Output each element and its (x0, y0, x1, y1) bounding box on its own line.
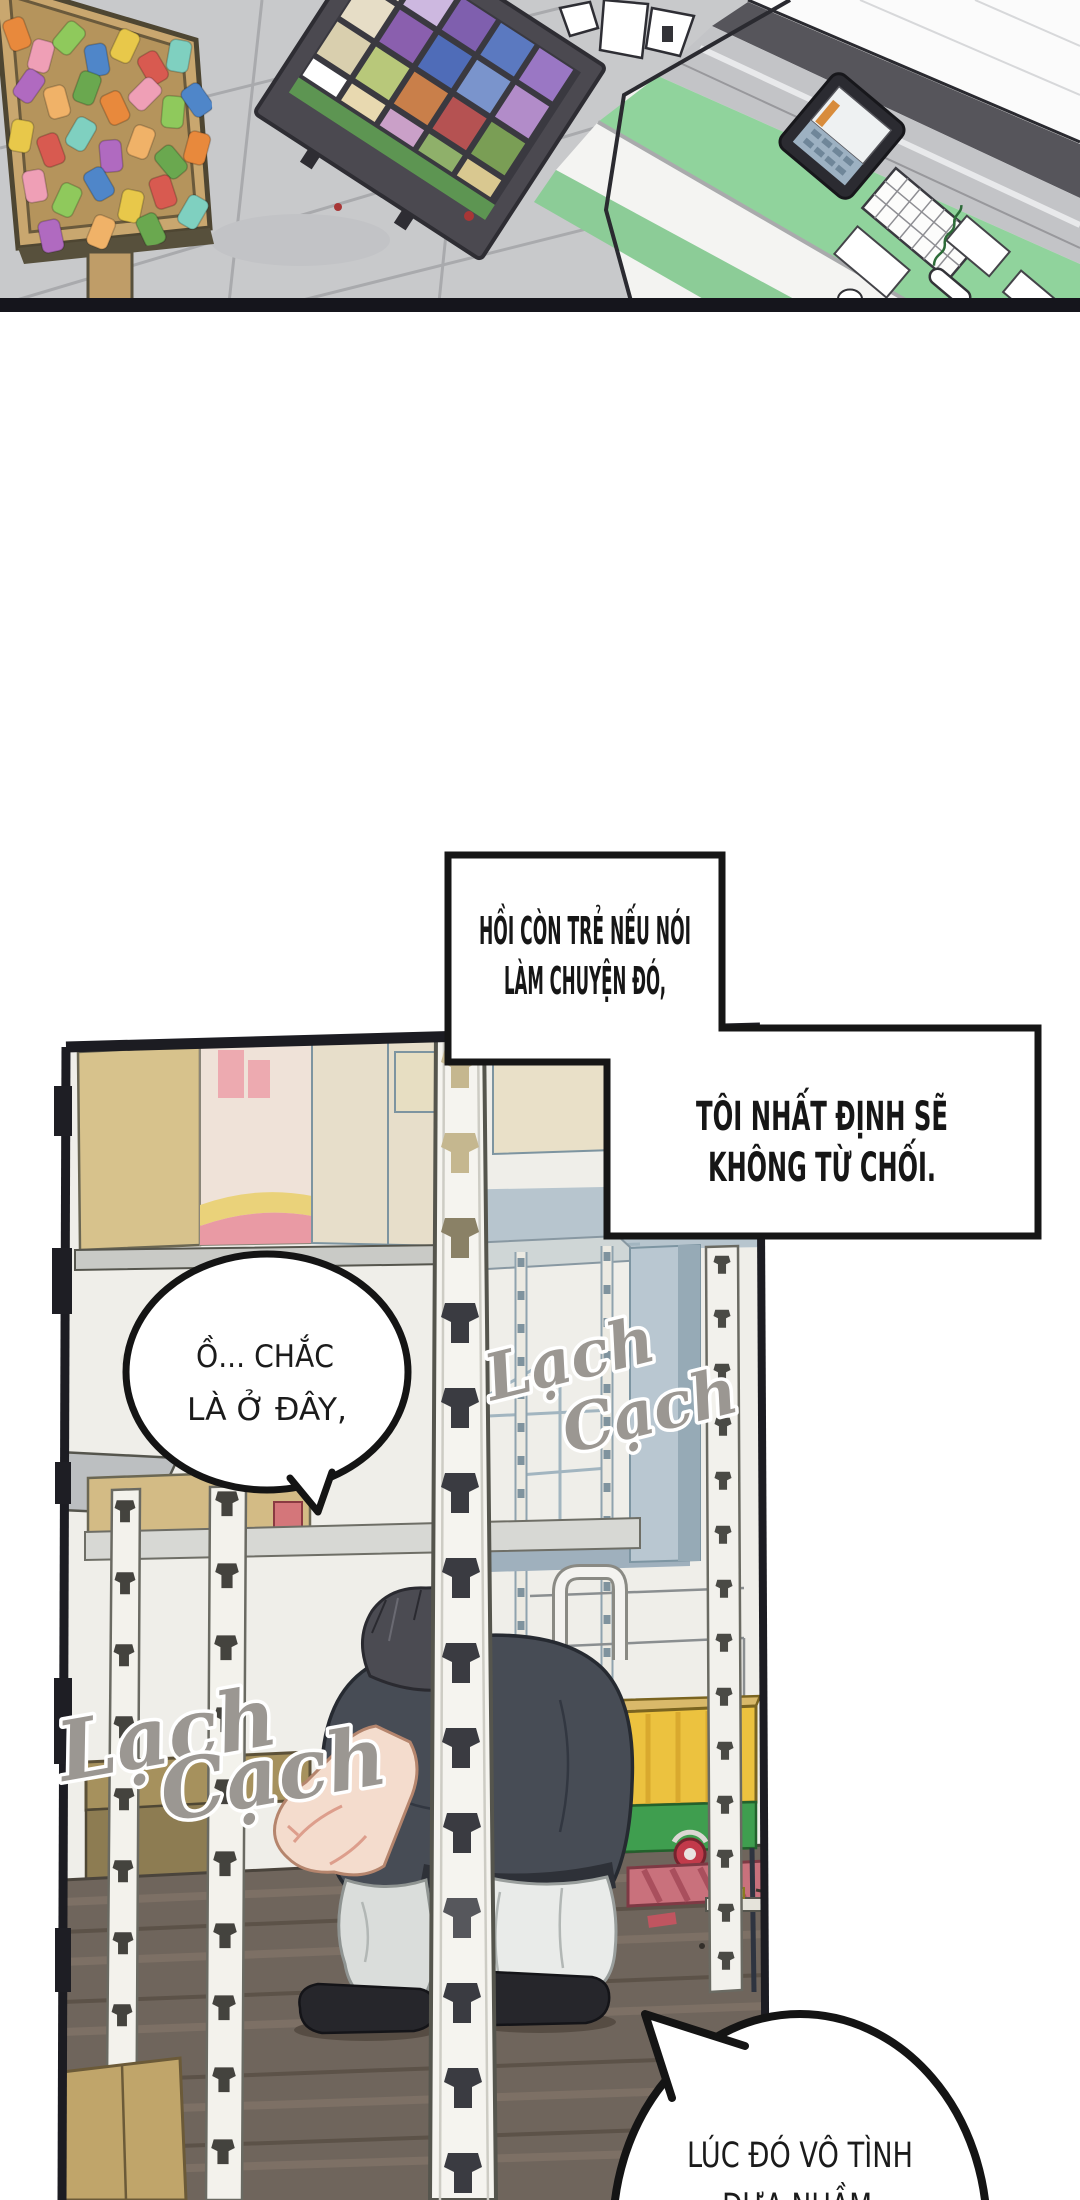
shelf-caster (464, 211, 474, 221)
shoe-left (299, 1984, 435, 2033)
comic-art: Lạch Cạch Lạch Cạch HỒI CÒN TRẺ NẾU NÓI … (0, 0, 1080, 2200)
bubble-1-line-2: LÀ Ở ĐÂY, (187, 1388, 347, 1428)
store-panel-border (0, 298, 1080, 312)
speech-box-2-line-2: KHÔNG TỪ CHỐI. (708, 1137, 936, 1191)
comic-page: Lạch Cạch Lạch Cạch HỒI CÒN TRẺ NẾU NÓI … (0, 0, 1080, 2200)
shelf-caster-2 (334, 203, 342, 211)
box-label (662, 26, 673, 42)
speech-box-1-line-2: LÀM CHUYỆN ĐÓ, (504, 959, 666, 1003)
store-panel (0, 0, 1080, 325)
white-box (600, 0, 648, 58)
speech-bubble-2: LÚC ĐÓ VÔ TÌNH ĐƯA NHẦM (613, 2014, 987, 2200)
speech-box-1-line-1: HỒI CÒN TRẺ NẾU NÓI (479, 904, 691, 953)
bubble-1-line-1: Ồ... CHẮC (196, 1335, 334, 1375)
floor-shade (210, 214, 390, 266)
shelf-upright-left-b (206, 1486, 246, 2200)
pink-canister (200, 1042, 312, 1245)
shelf-upright-center (430, 1028, 496, 2200)
pants-left-leg (339, 1880, 435, 1999)
bubble-2-line-1: LÚC ĐÓ VÔ TÌNH (687, 2134, 913, 2176)
speech-box-2-line-1: TÔI NHẤT ĐỊNH SẼ (696, 1086, 948, 1140)
